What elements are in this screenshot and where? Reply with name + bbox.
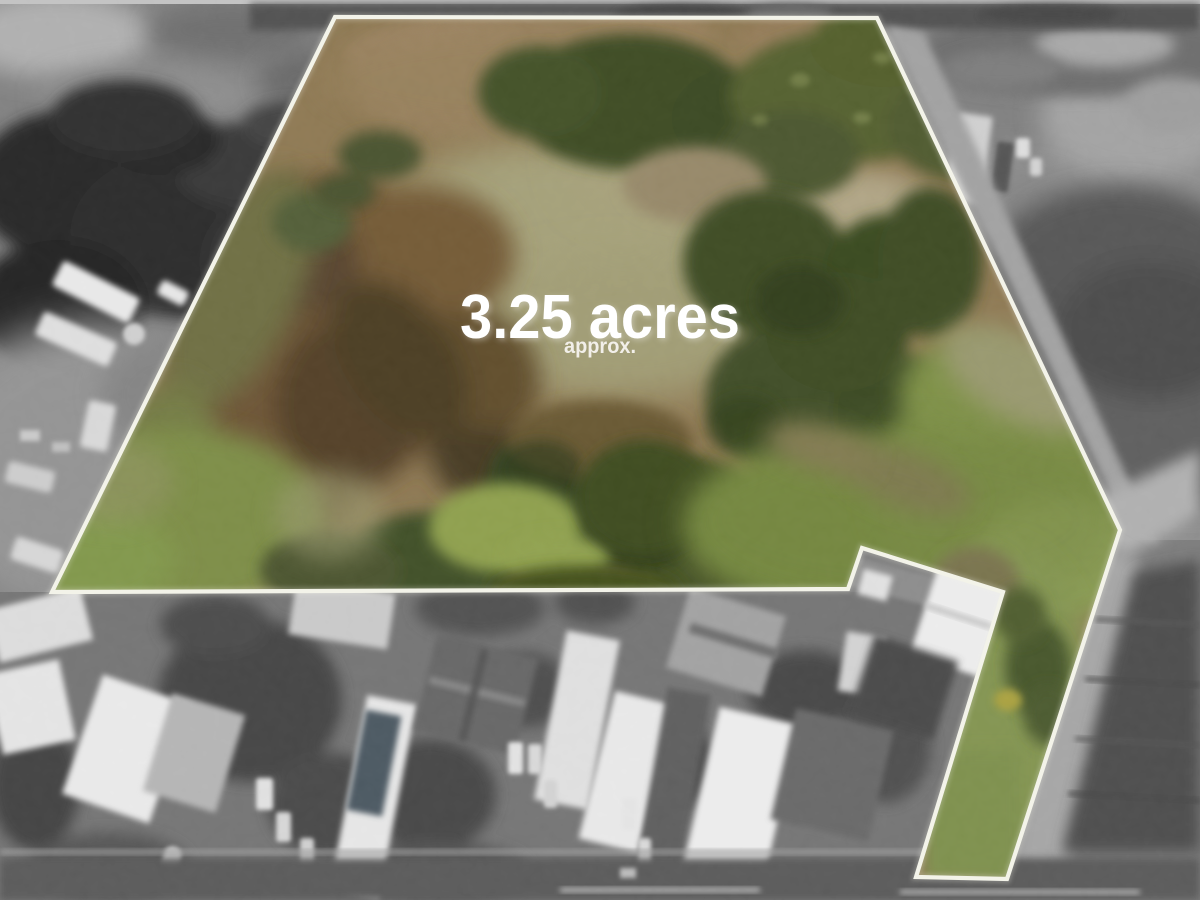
svg-text:approx.: approx. (564, 335, 636, 358)
